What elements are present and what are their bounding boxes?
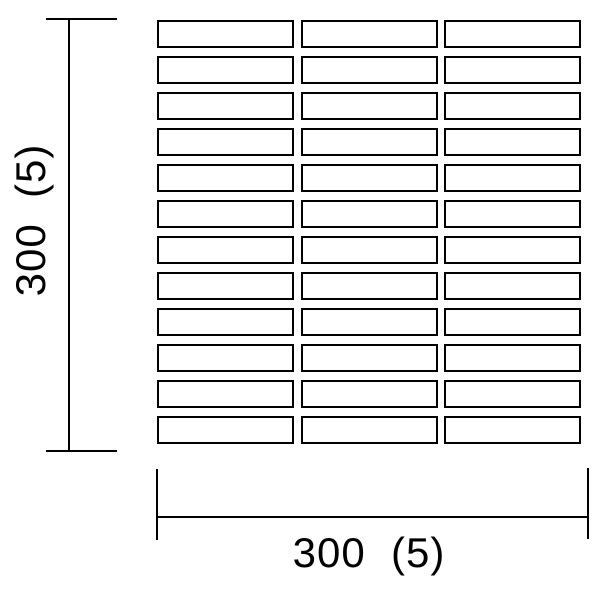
tile <box>301 92 438 120</box>
tile <box>301 236 438 264</box>
tile <box>157 200 294 228</box>
tile <box>444 56 581 84</box>
tile <box>157 416 294 444</box>
horizontal-dimension-right-tick <box>587 468 589 539</box>
vertical-dimension-top-tick <box>46 18 117 20</box>
vertical-dimension-label: 300 (5) <box>6 110 56 330</box>
tile <box>301 200 438 228</box>
vertical-dimension-bottom-tick <box>46 450 117 452</box>
tile <box>444 92 581 120</box>
tile <box>444 164 581 192</box>
drawing-canvas: 300 (5) 300 (5) <box>0 0 600 600</box>
tile <box>301 416 438 444</box>
tile <box>444 380 581 408</box>
horizontal-dimension-left-tick <box>156 469 158 540</box>
tile <box>157 56 294 84</box>
horizontal-dimension-label: 300 (5) <box>219 528 519 578</box>
tile <box>157 92 294 120</box>
tile <box>157 128 294 156</box>
tile <box>444 236 581 264</box>
tile <box>301 272 438 300</box>
tile <box>444 20 581 48</box>
tile <box>157 236 294 264</box>
tile <box>301 56 438 84</box>
tile-grid <box>157 20 581 444</box>
tile <box>157 272 294 300</box>
tile <box>444 344 581 372</box>
vertical-dimension-line <box>68 19 70 451</box>
tile <box>301 344 438 372</box>
tile <box>444 416 581 444</box>
tile <box>157 344 294 372</box>
tile <box>157 20 294 48</box>
tile <box>444 128 581 156</box>
tile <box>301 164 438 192</box>
tile <box>301 380 438 408</box>
tile <box>157 380 294 408</box>
tile <box>444 308 581 336</box>
horizontal-dimension-line <box>157 516 589 518</box>
tile <box>301 20 438 48</box>
tile <box>157 308 294 336</box>
tile <box>301 308 438 336</box>
tile <box>444 200 581 228</box>
tile <box>444 272 581 300</box>
tile <box>301 128 438 156</box>
tile <box>157 164 294 192</box>
